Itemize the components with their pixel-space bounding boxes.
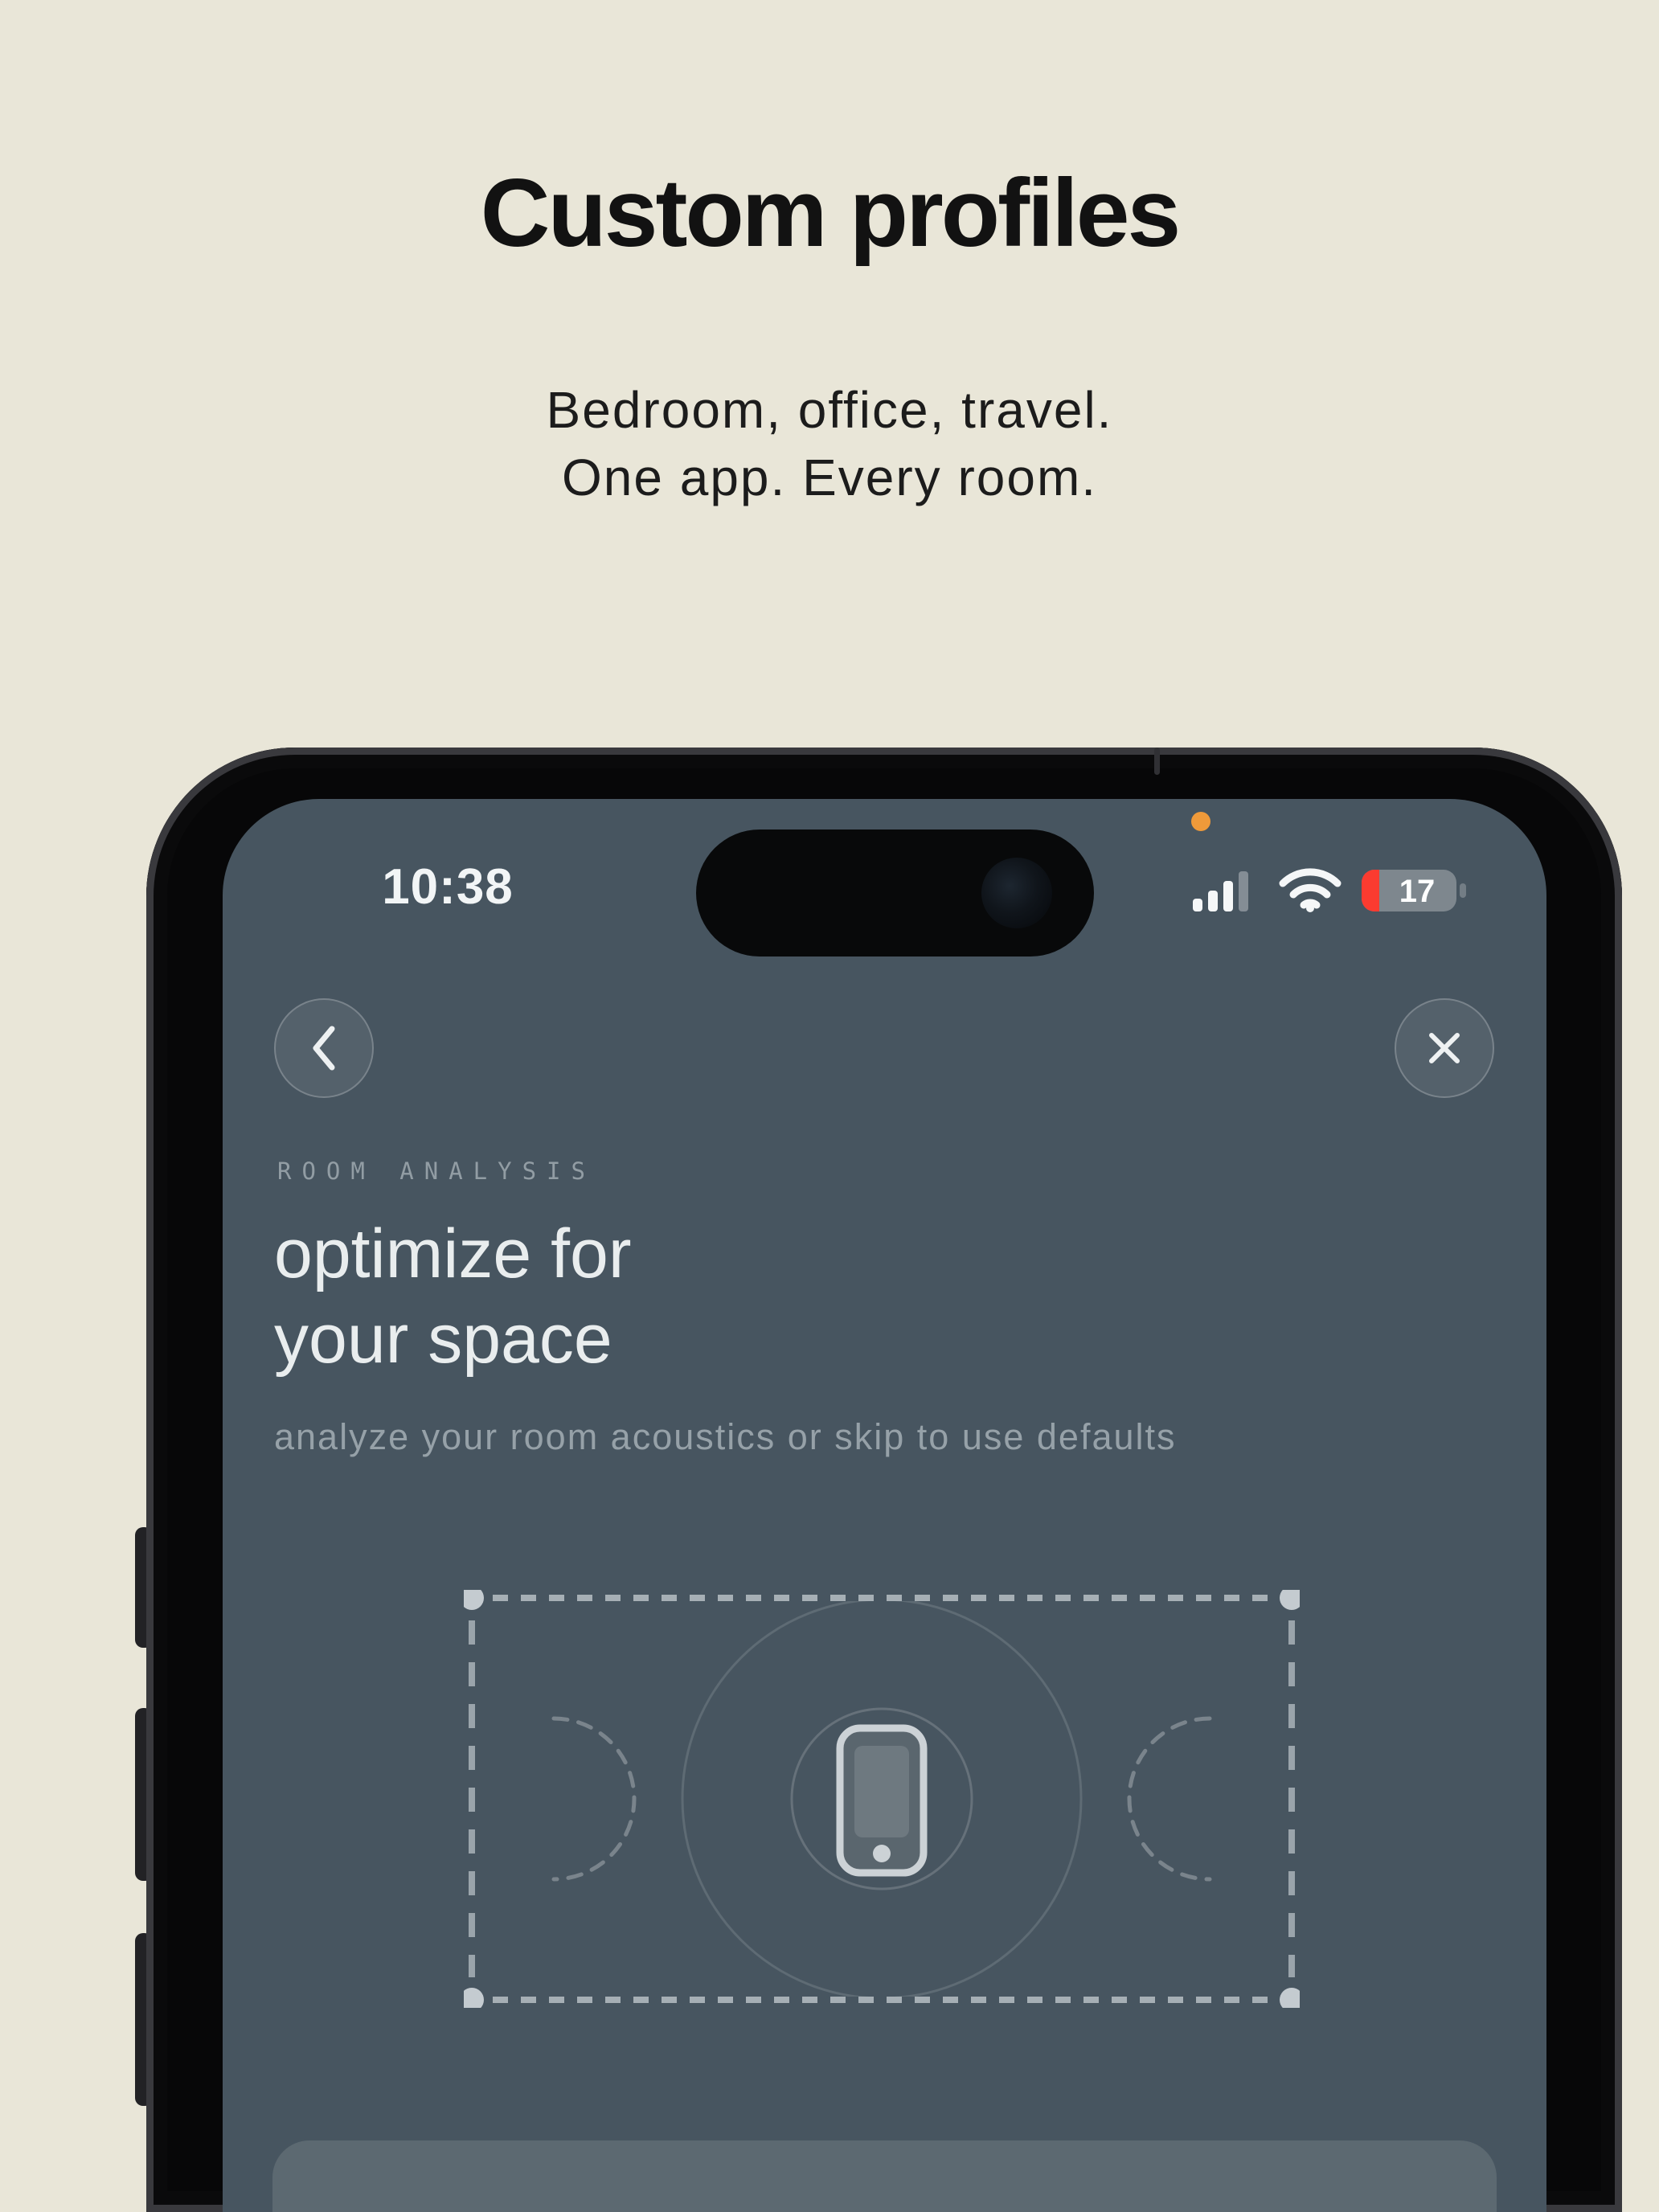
- app-screen: 10:38: [223, 799, 1546, 2212]
- close-icon: [1425, 1029, 1464, 1067]
- close-button[interactable]: [1395, 998, 1494, 1098]
- wifi-icon: [1278, 867, 1342, 914]
- phone-body: 10:38: [146, 748, 1622, 2212]
- screen-heading: optimize for your space: [274, 1212, 632, 1382]
- left-dashed-arc: [554, 1718, 634, 1879]
- antenna-band-line: [1154, 748, 1160, 775]
- bottom-action-card[interactable]: [272, 2140, 1497, 2212]
- cellular-signal-icon: [1193, 868, 1260, 913]
- chevron-left-icon: [306, 1024, 342, 1072]
- privacy-indicator-dot: [1191, 812, 1210, 831]
- phone-mockup: 10:38: [0, 0, 1659, 2212]
- battery-low-fill: [1362, 870, 1379, 911]
- right-dashed-arc: [1129, 1718, 1210, 1879]
- section-eyebrow: ROOM ANALYSIS: [277, 1157, 596, 1185]
- status-bar-time: 10:38: [343, 858, 552, 916]
- back-button[interactable]: [274, 998, 374, 1098]
- status-bar-icons: 17: [1193, 866, 1466, 915]
- front-camera: [981, 858, 1052, 928]
- dynamic-island: [696, 829, 1094, 956]
- heading-line-1: optimize for: [274, 1215, 632, 1292]
- battery-percent-label: 17: [1399, 874, 1436, 909]
- heading-line-2: your space: [274, 1301, 612, 1378]
- screen-description: analyze your room acoustics or skip to u…: [274, 1416, 1512, 1458]
- room-scan-illustration: [464, 1590, 1300, 2008]
- phone-device-icon: [840, 1728, 924, 1873]
- battery-icon: 17: [1360, 866, 1466, 915]
